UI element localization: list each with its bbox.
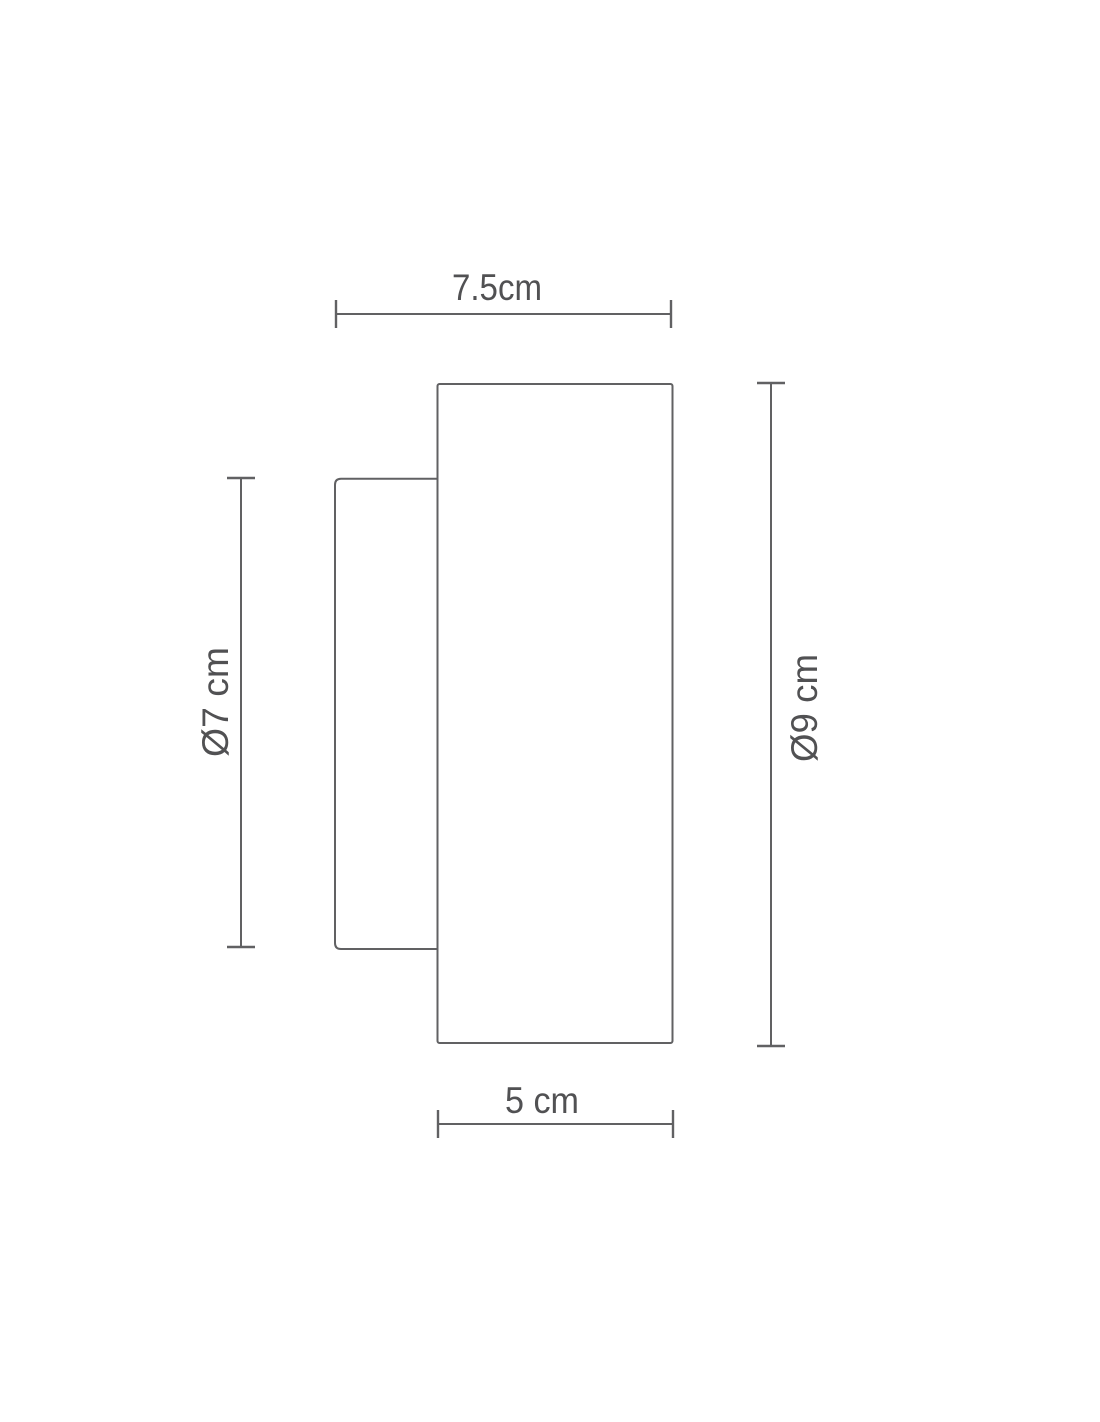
svg-text:7.5cm: 7.5cm bbox=[452, 267, 542, 308]
svg-text:5 cm: 5 cm bbox=[505, 1080, 579, 1121]
svg-text:Ø9 cm: Ø9 cm bbox=[784, 654, 825, 762]
svg-text:Ø7 cm: Ø7 cm bbox=[195, 647, 236, 757]
